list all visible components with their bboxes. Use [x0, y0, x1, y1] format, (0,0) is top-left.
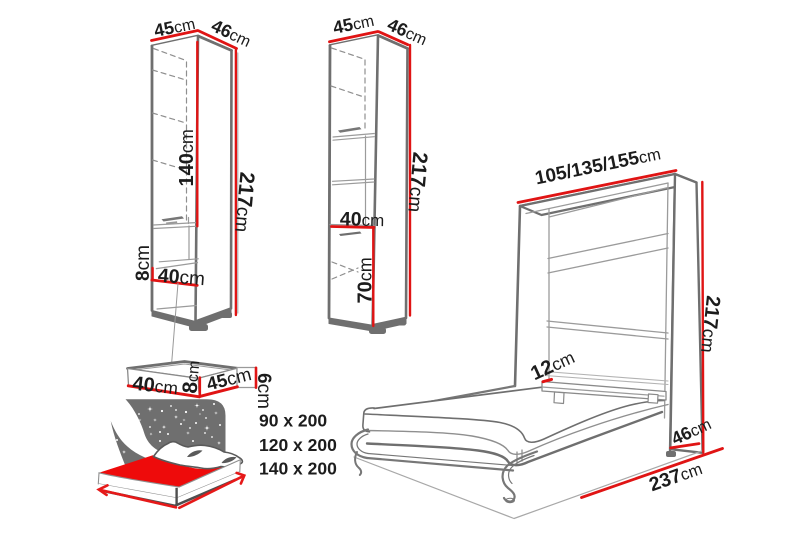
svg-text:40cm: 40cm [157, 265, 206, 291]
svg-text:140cm: 140cm [176, 129, 198, 186]
svg-text:140 x 200: 140 x 200 [259, 459, 337, 479]
svg-text:90 x 200: 90 x 200 [259, 411, 327, 431]
svg-text:70cm: 70cm [355, 257, 377, 303]
svg-text:237cm: 237cm [646, 457, 705, 496]
svg-text:217cm: 217cm [230, 171, 258, 233]
svg-text:8cm: 8cm [133, 245, 154, 281]
svg-text:6cm: 6cm [253, 373, 274, 409]
svg-text:120 x 200: 120 x 200 [259, 435, 337, 455]
svg-text:40cm: 40cm [340, 208, 385, 231]
